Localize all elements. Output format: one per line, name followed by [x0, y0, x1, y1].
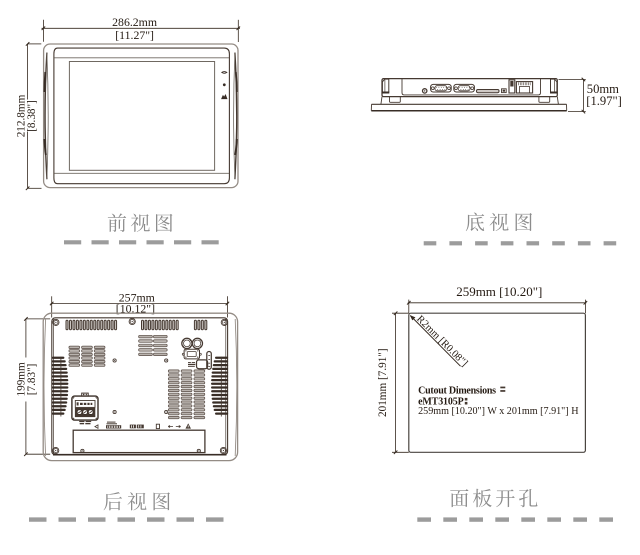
svg-text:[11.27"]: [11.27"]	[115, 28, 154, 42]
svg-text:[1.97"]: [1.97"]	[586, 94, 622, 108]
svg-text:[8.38"]: [8.38"]	[26, 100, 38, 132]
svg-text:259mm [10.20"] W x 201mm [7.91: 259mm [10.20"] W x 201mm [7.91"] H	[418, 406, 578, 417]
svg-text:Cutout Dimensions: Cutout Dimensions	[418, 386, 496, 397]
svg-text:201mm [7.91"]: 201mm [7.91"]	[377, 348, 389, 417]
svg-text:[7.83"]: [7.83"]	[26, 364, 38, 396]
svg-text:259mm [10.20"]: 259mm [10.20"]	[456, 284, 542, 299]
